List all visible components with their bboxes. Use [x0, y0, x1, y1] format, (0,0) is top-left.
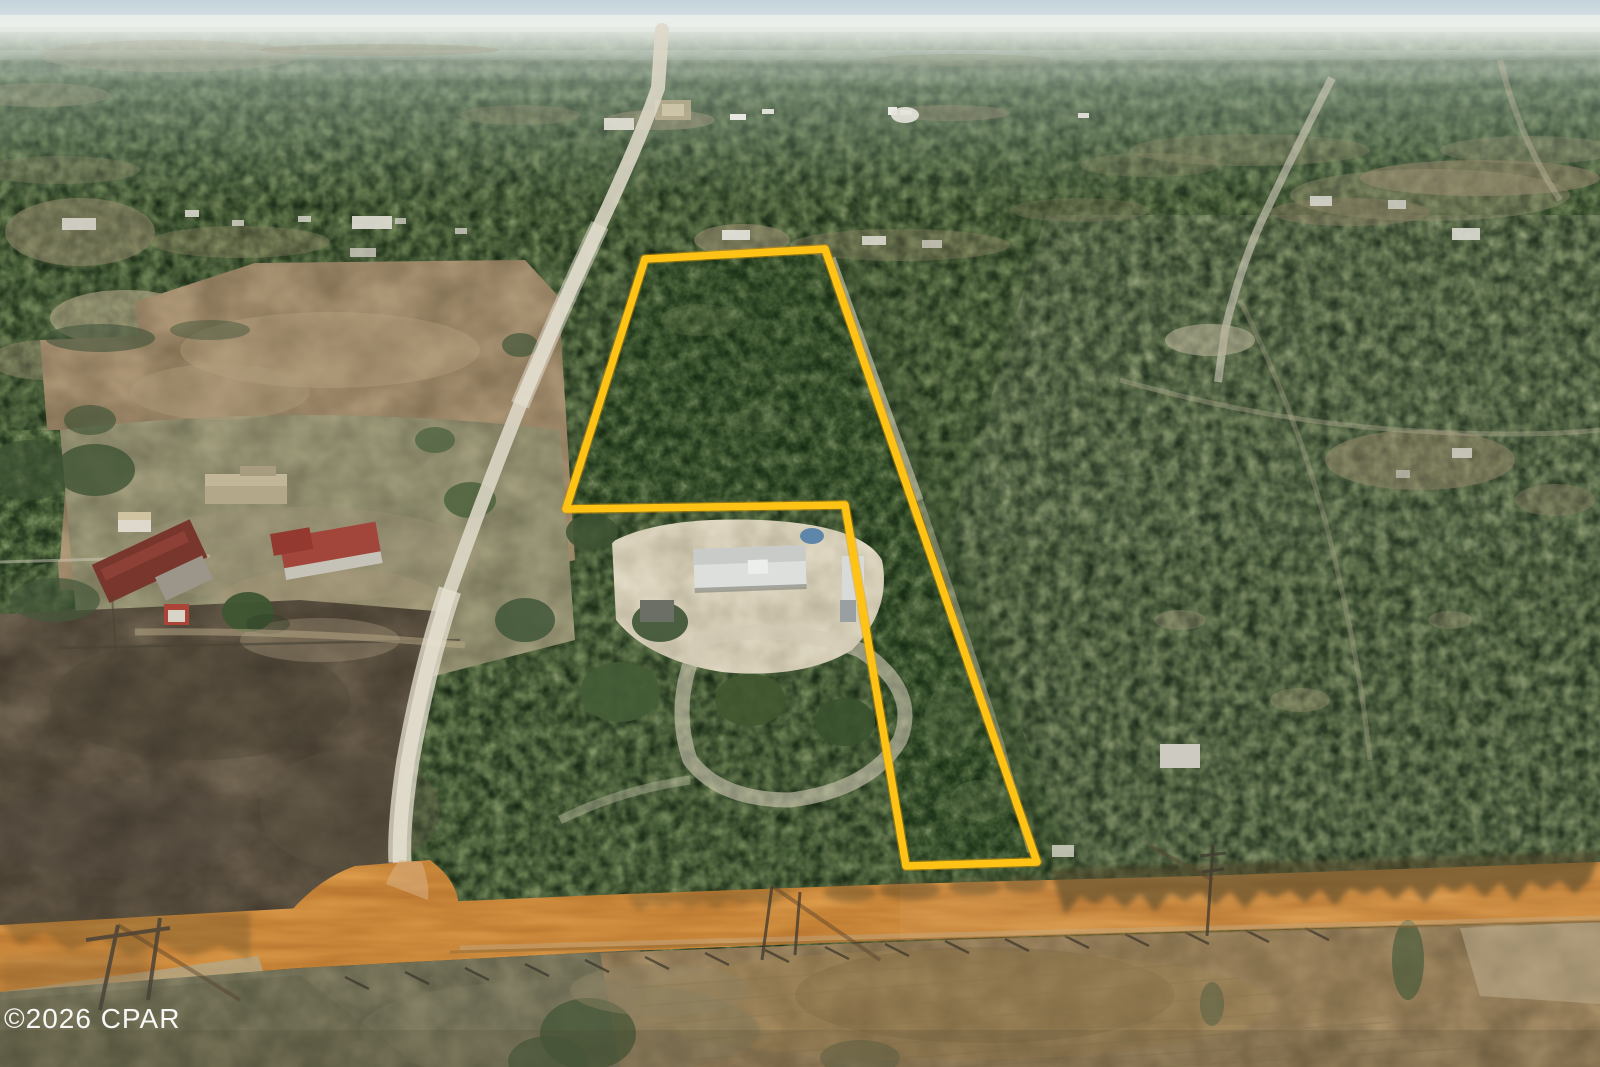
svg-text:©2026 CPAR: ©2026 CPAR	[4, 1003, 180, 1034]
